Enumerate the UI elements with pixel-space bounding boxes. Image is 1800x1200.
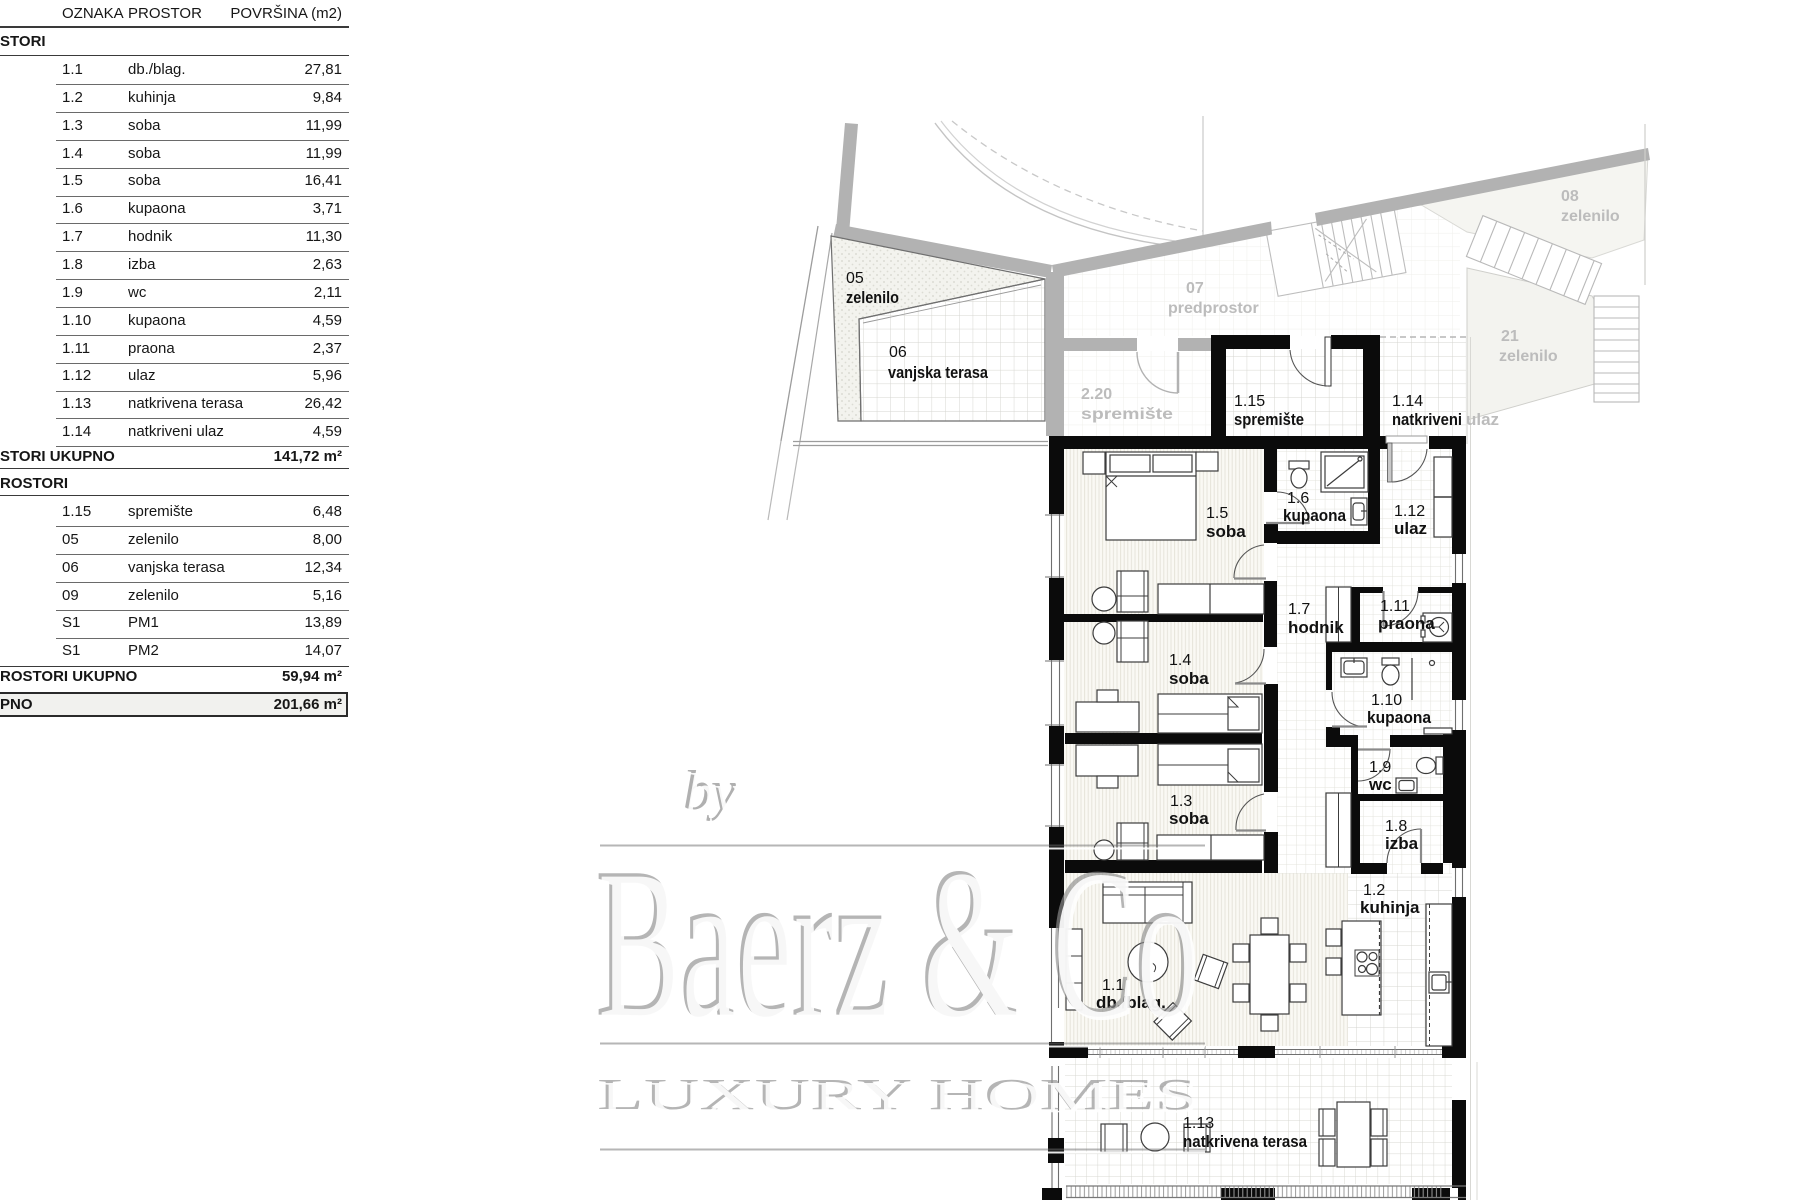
svg-text:ulaz: ulaz xyxy=(1394,519,1427,538)
svg-text:praona: praona xyxy=(1378,614,1435,633)
svg-text:07: 07 xyxy=(1186,280,1204,297)
svg-text:1.9: 1.9 xyxy=(1369,759,1391,776)
svg-text:2.20: 2.20 xyxy=(1081,386,1112,403)
svg-text:Baerz & Co: Baerz & Co xyxy=(598,826,1200,1065)
svg-text:21: 21 xyxy=(1501,328,1519,345)
svg-text:by: by xyxy=(686,763,739,825)
svg-text:kupaona: kupaona xyxy=(1283,506,1346,525)
svg-text:1.12: 1.12 xyxy=(1394,503,1425,520)
svg-text:natkriveni: natkriveni xyxy=(1392,410,1462,429)
svg-text:kupaona: kupaona xyxy=(1367,708,1431,727)
svg-text:06: 06 xyxy=(889,344,907,361)
svg-text:natkrivena terasa: natkrivena terasa xyxy=(1183,1132,1307,1151)
svg-text:ulaz: ulaz xyxy=(1466,410,1499,429)
svg-text:LUXURY HOMES: LUXURY HOMES xyxy=(600,1073,1200,1122)
svg-text:spremište: spremište xyxy=(1081,406,1173,423)
svg-text:1.10: 1.10 xyxy=(1371,692,1402,709)
svg-text:1.6: 1.6 xyxy=(1287,490,1309,507)
svg-text:soba: soba xyxy=(1206,522,1246,541)
svg-text:predprostor: predprostor xyxy=(1168,300,1259,317)
svg-text:1.8: 1.8 xyxy=(1385,818,1407,835)
svg-text:1.7: 1.7 xyxy=(1288,601,1310,618)
svg-text:soba: soba xyxy=(1169,669,1209,688)
svg-text:1.14: 1.14 xyxy=(1392,393,1423,410)
svg-text:1.5: 1.5 xyxy=(1206,505,1228,522)
svg-text:1.2: 1.2 xyxy=(1363,882,1385,899)
svg-text:kuhinja: kuhinja xyxy=(1360,898,1420,917)
svg-text:spremište: spremište xyxy=(1234,410,1304,429)
svg-text:1.11: 1.11 xyxy=(1380,598,1410,615)
svg-text:zelenilo: zelenilo xyxy=(846,288,899,307)
svg-text:zelenilo: zelenilo xyxy=(1561,208,1620,225)
svg-text:08: 08 xyxy=(1561,188,1579,205)
svg-text:izba: izba xyxy=(1385,834,1419,853)
svg-text:1.15: 1.15 xyxy=(1234,393,1265,410)
svg-text:zelenilo: zelenilo xyxy=(1499,348,1558,365)
svg-text:vanjska terasa: vanjska terasa xyxy=(888,363,988,382)
svg-text:wc: wc xyxy=(1368,775,1392,794)
svg-text:05: 05 xyxy=(846,270,864,287)
svg-text:hodnik: hodnik xyxy=(1288,618,1344,637)
svg-text:1.4: 1.4 xyxy=(1169,652,1191,669)
svg-text:1.3: 1.3 xyxy=(1170,793,1192,810)
